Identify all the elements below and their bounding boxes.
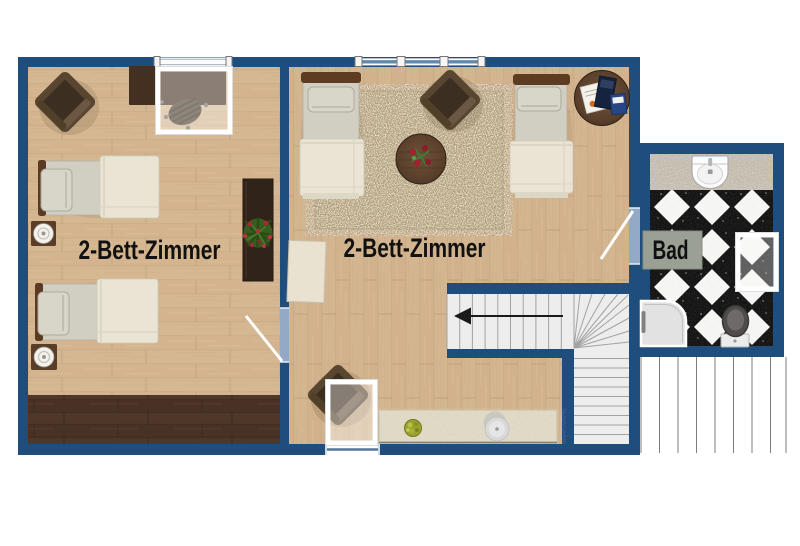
svg-text:Bad: Bad — [653, 235, 689, 265]
svg-text:2-Bett-Zimmer: 2-Bett-Zimmer — [79, 235, 221, 265]
svg-text:2-Bett-Zimmer: 2-Bett-Zimmer — [344, 233, 486, 263]
